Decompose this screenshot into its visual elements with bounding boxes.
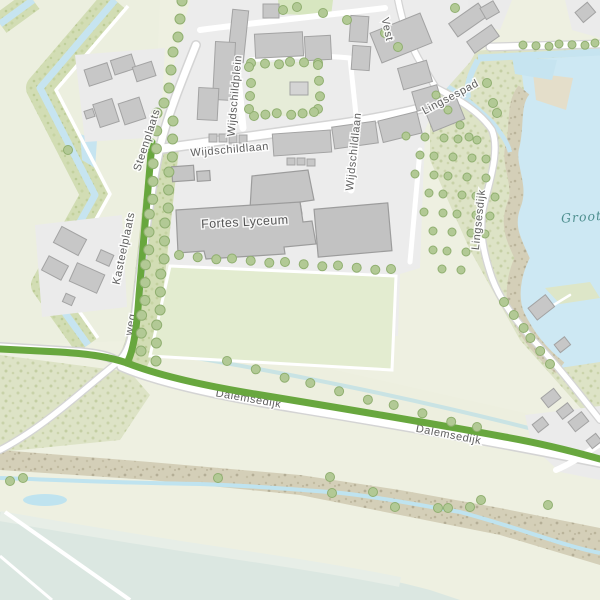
tree-icon — [371, 265, 380, 274]
tree-icon — [223, 357, 232, 366]
tree-icon — [391, 503, 400, 512]
tree-icon — [465, 133, 473, 141]
tree-icon — [454, 135, 462, 143]
tree-icon — [144, 209, 154, 219]
tree-icon — [177, 0, 187, 6]
tree-icon — [418, 409, 427, 418]
tree-icon — [439, 190, 447, 198]
tree-icon — [212, 255, 221, 264]
tree-icon — [326, 473, 335, 482]
tree-icon — [160, 236, 170, 246]
tree-icon — [451, 4, 460, 13]
tree-icon — [447, 417, 456, 426]
tree-icon — [156, 269, 166, 279]
tree-icon — [19, 474, 28, 483]
tree-icon — [245, 105, 254, 114]
tree-icon — [444, 172, 452, 180]
tree-icon — [298, 109, 307, 118]
tree-icon — [163, 203, 173, 213]
tree-icon — [519, 324, 528, 333]
tree-icon — [159, 254, 169, 264]
map-canvas: Dalemsedijk Dalemsedijk weg Fortes Lyceu… — [0, 0, 600, 600]
tree-icon — [166, 65, 176, 75]
tree-icon — [140, 260, 150, 270]
tree-icon — [281, 258, 290, 267]
tree-icon — [315, 76, 324, 85]
tree-icon — [453, 210, 461, 218]
tree-icon — [489, 99, 498, 108]
tree-icon — [536, 347, 545, 356]
tree-icon — [319, 9, 328, 18]
courtyard — [250, 62, 320, 116]
tree-icon — [164, 83, 174, 93]
tree-icon — [482, 174, 490, 182]
tree-icon — [64, 146, 73, 155]
tree-icon — [387, 265, 396, 274]
tree-icon — [310, 108, 319, 117]
tree-icon — [328, 489, 337, 498]
tree-icon — [164, 185, 174, 195]
tree-icon — [591, 39, 599, 47]
tree-icon — [167, 152, 177, 162]
tree-icon — [486, 212, 494, 220]
tree-icon — [155, 305, 165, 315]
tree-icon — [420, 208, 428, 216]
tree-icon — [462, 248, 470, 256]
tree-icon — [318, 262, 327, 271]
tree-icon — [434, 504, 443, 513]
tree-icon — [148, 194, 158, 204]
tree-icon — [155, 287, 165, 297]
tree-icon — [159, 98, 169, 108]
tree-icon — [144, 227, 154, 237]
tree-icon — [500, 298, 509, 307]
tree-icon — [261, 59, 270, 68]
tree-icon — [493, 109, 502, 118]
tree-icon — [168, 116, 178, 126]
tree-icon — [438, 265, 446, 273]
tree-icon — [425, 189, 433, 197]
sports-field — [150, 266, 396, 370]
tree-icon — [148, 176, 158, 186]
tree-icon — [448, 228, 456, 236]
tree-icon — [261, 110, 270, 119]
tree-icon — [193, 253, 202, 262]
tree-icon — [151, 338, 161, 348]
tree-icon — [279, 6, 288, 15]
tree-icon — [545, 42, 553, 50]
tree-icon — [352, 263, 361, 272]
tree-icon — [144, 245, 154, 255]
tree-icon — [439, 209, 447, 217]
tree-icon — [482, 155, 490, 163]
tree-icon — [6, 477, 15, 486]
tree-icon — [275, 60, 284, 69]
tree-icon — [532, 42, 540, 50]
tree-icon — [136, 346, 146, 356]
tree-icon — [272, 109, 281, 118]
tree-icon — [140, 278, 150, 288]
tree-icon — [287, 110, 296, 119]
tree-icon — [483, 79, 492, 88]
tree-icon — [402, 132, 410, 140]
tree-icon — [519, 41, 527, 49]
tree-icon — [164, 167, 174, 177]
tree-icon — [299, 260, 308, 269]
tree-icon — [137, 310, 147, 320]
tree-icon — [444, 504, 453, 513]
tree-icon — [334, 261, 343, 270]
tree-icon — [458, 191, 466, 199]
tree-icon — [411, 170, 419, 178]
tree-icon — [429, 227, 437, 235]
tree-icon — [473, 423, 482, 432]
stream-pool — [23, 494, 67, 506]
tree-icon — [316, 92, 325, 101]
tree-icon — [245, 63, 254, 72]
tree-icon — [463, 173, 471, 181]
tree-icon — [430, 152, 438, 160]
tree-icon — [246, 92, 255, 101]
tree-icon — [175, 251, 184, 260]
tree-icon — [168, 47, 178, 57]
tree-icon — [568, 41, 576, 49]
tree-icon — [148, 159, 158, 169]
tree-icon — [280, 373, 289, 382]
tree-icon — [546, 360, 555, 369]
tree-icon — [214, 474, 223, 483]
tree-icon — [152, 320, 162, 330]
tree-icon — [416, 151, 424, 159]
tree-icon — [151, 144, 161, 154]
tree-icon — [300, 58, 309, 67]
tree-icon — [555, 40, 563, 48]
tree-icon — [314, 61, 323, 70]
tree-icon — [468, 154, 476, 162]
tree-icon — [440, 134, 448, 142]
tree-icon — [136, 328, 146, 338]
tree-icon — [247, 79, 256, 88]
tree-icon — [293, 3, 302, 12]
tree-icon — [473, 136, 481, 144]
tree-icon — [389, 401, 398, 410]
tree-icon — [491, 193, 499, 201]
tree-icon — [335, 387, 344, 396]
tree-icon — [168, 134, 178, 144]
tree-icon — [140, 295, 150, 305]
tree-icon — [394, 43, 403, 52]
tree-icon — [306, 379, 315, 388]
tree-icon — [151, 356, 161, 366]
tree-icon — [363, 395, 372, 404]
tree-icon — [449, 153, 457, 161]
tree-icon — [457, 266, 465, 274]
tree-icon — [477, 496, 486, 505]
tree-icon — [160, 218, 170, 228]
tree-icon — [443, 247, 451, 255]
tree-icon — [421, 133, 429, 141]
tree-icon — [343, 16, 352, 25]
tree-icon — [246, 256, 255, 265]
tree-icon — [429, 246, 437, 254]
tree-icon — [251, 365, 260, 374]
tree-icon — [265, 258, 274, 267]
tree-icon — [369, 488, 378, 497]
tree-icon — [456, 121, 464, 129]
tree-icon — [173, 32, 183, 42]
map-viewport[interactable]: Dalemsedijk Dalemsedijk weg Fortes Lyceu… — [0, 0, 600, 600]
tree-icon — [228, 254, 237, 263]
water-label-groote: Groote — [561, 207, 600, 225]
tree-icon — [444, 106, 452, 114]
tree-icon — [581, 41, 589, 49]
tree-icon — [430, 171, 438, 179]
tree-icon — [544, 501, 553, 510]
tree-icon — [526, 334, 535, 343]
tree-icon — [286, 57, 295, 66]
tree-icon — [466, 503, 475, 512]
tree-icon — [509, 311, 518, 320]
tree-icon — [175, 14, 185, 24]
